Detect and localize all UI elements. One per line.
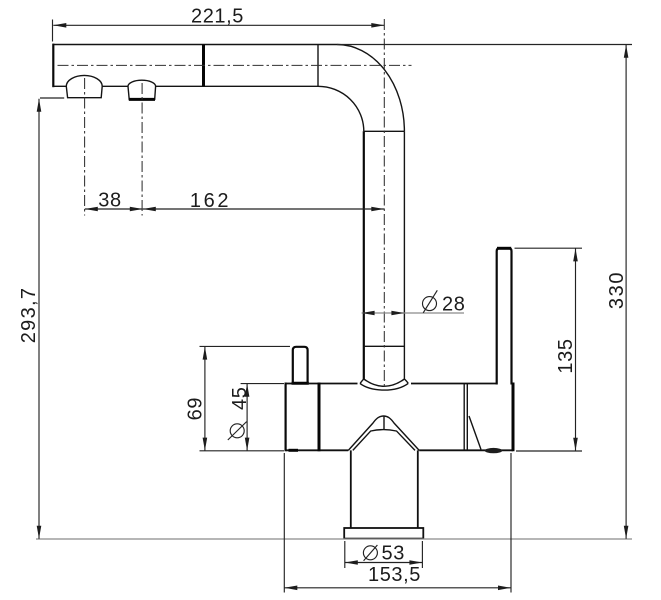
svg-text:45: 45	[229, 386, 251, 409]
svg-text:38: 38	[98, 189, 121, 211]
svg-text:162: 162	[190, 190, 231, 212]
svg-text:53: 53	[382, 543, 405, 565]
svg-text:153,5: 153,5	[368, 564, 421, 586]
svg-text:135: 135	[555, 338, 577, 373]
svg-text:69: 69	[185, 397, 207, 420]
svg-text:293,7: 293,7	[18, 287, 40, 344]
svg-text:221,5: 221,5	[191, 6, 244, 28]
svg-text:330: 330	[606, 271, 628, 309]
svg-text:28: 28	[442, 294, 465, 316]
